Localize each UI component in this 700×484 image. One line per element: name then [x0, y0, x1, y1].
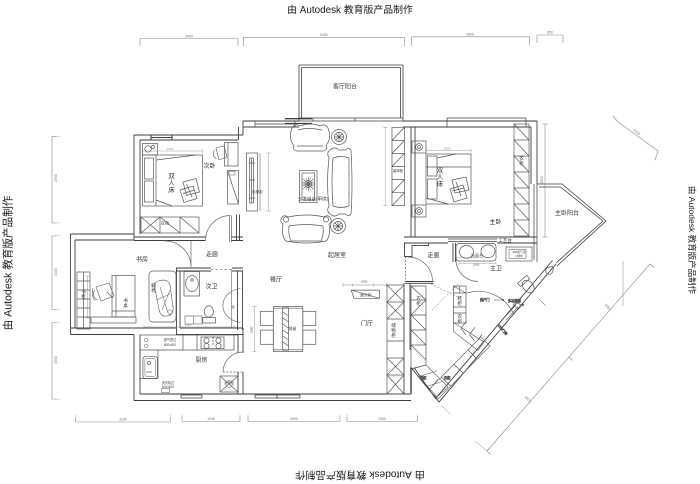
- svg-text:2590: 2590: [54, 356, 58, 364]
- svg-text:多功能箱: 多功能箱: [508, 298, 522, 303]
- svg-text:主卫: 主卫: [490, 265, 502, 273]
- svg-text:1940: 1940: [207, 417, 215, 421]
- svg-text:衣柜: 衣柜: [444, 375, 451, 380]
- svg-text:双人床: 双人床: [437, 166, 444, 188]
- svg-text:5480: 5480: [320, 33, 328, 37]
- svg-text:2480: 2480: [54, 268, 58, 276]
- svg-text:进户门: 进户门: [480, 297, 490, 302]
- svg-text:3090: 3090: [290, 417, 298, 421]
- svg-text:次卧: 次卧: [203, 162, 215, 170]
- svg-text:餐厅: 餐厅: [270, 276, 282, 284]
- svg-text:起居室: 起居室: [328, 251, 346, 259]
- svg-text:衣柜: 衣柜: [519, 155, 524, 167]
- svg-text:储物柜: 储物柜: [391, 322, 396, 339]
- svg-text:1600: 1600: [250, 326, 254, 333]
- svg-text:装饰柜: 装饰柜: [393, 168, 404, 173]
- svg-text:双人床: 双人床: [168, 172, 175, 194]
- svg-text:门厅: 门厅: [361, 320, 373, 328]
- svg-text:客厅阳台: 客厅阳台: [333, 83, 357, 91]
- svg-text:煤气表位: 煤气表位: [164, 337, 178, 342]
- svg-text:主卧阳台: 主卧阳台: [555, 209, 579, 217]
- svg-text:3900: 3900: [540, 176, 544, 184]
- svg-text:1500: 1500: [632, 128, 641, 136]
- svg-text:走廊: 走廊: [427, 252, 439, 260]
- svg-text:1050门洞: 1050门洞: [496, 322, 509, 335]
- svg-text:2360: 2360: [378, 417, 386, 421]
- svg-text:1800: 1800: [444, 147, 451, 151]
- svg-text:3050: 3050: [604, 303, 612, 312]
- svg-text:3400: 3400: [185, 35, 193, 39]
- svg-text:厨房: 厨房: [195, 356, 207, 364]
- svg-text:800x400: 800x400: [164, 343, 176, 347]
- svg-text:2870: 2870: [524, 395, 532, 404]
- svg-text:次卫: 次卫: [205, 283, 217, 291]
- svg-text:2850: 2850: [185, 323, 192, 327]
- svg-text:3900: 3900: [466, 33, 474, 37]
- svg-text:书桌: 书桌: [123, 297, 128, 309]
- svg-text:2000: 2000: [167, 147, 174, 151]
- svg-text:工艺台: 工艺台: [498, 237, 512, 244]
- svg-text:走廊: 走廊: [206, 251, 218, 259]
- svg-text:1500: 1500: [361, 280, 368, 284]
- svg-text:鞋柜: 鞋柜: [458, 295, 463, 307]
- svg-text:3180: 3180: [119, 418, 127, 422]
- svg-text:850: 850: [547, 31, 553, 35]
- svg-text:(木制): (木制): [515, 254, 523, 258]
- svg-text:沙发组合(甲供): 沙发组合(甲供): [298, 196, 328, 203]
- svg-text:餐桌: 餐桌: [289, 326, 297, 331]
- svg-text:2900: 2900: [54, 174, 58, 182]
- svg-text:1500: 1500: [473, 263, 480, 267]
- svg-text:书房: 书房: [136, 256, 148, 264]
- svg-text:主卧: 主卧: [489, 218, 501, 226]
- svg-text:鞋柜: 鞋柜: [420, 375, 427, 380]
